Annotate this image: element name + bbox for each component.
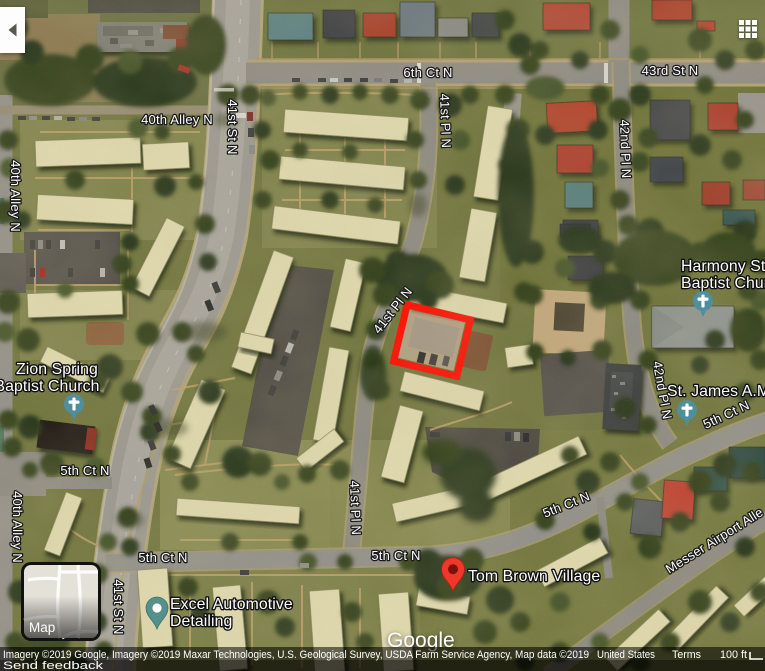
svg-text:Send feedback: Send feedback	[3, 660, 104, 671]
svg-text:Harmony Stre: Harmony Stre	[681, 258, 765, 275]
svg-text:100 ft: 100 ft	[720, 649, 747, 661]
svg-text:Terms: Terms	[672, 649, 701, 661]
svg-text:40th Alley N: 40th Alley N	[141, 112, 213, 127]
svg-text:41st St N: 41st St N	[111, 579, 126, 634]
svg-text:Baptist Churc: Baptist Churc	[681, 275, 765, 292]
svg-text:St. James A.M.: St. James A.M.	[667, 383, 765, 400]
svg-text:Map: Map	[29, 620, 55, 635]
svg-text:42nd Pl N: 42nd Pl N	[617, 119, 634, 178]
svg-text:Detailing: Detailing	[170, 613, 232, 630]
svg-text:5th Ct N: 5th Ct N	[60, 463, 109, 478]
svg-text:Baptist Church: Baptist Church	[0, 378, 100, 395]
svg-text:Tom Brown Village: Tom Brown Village	[468, 568, 600, 585]
svg-text:5th Ct N: 5th Ct N	[138, 550, 187, 565]
svg-text:Zion Spring: Zion Spring	[16, 361, 98, 378]
svg-text:41st Pl N: 41st Pl N	[437, 93, 454, 148]
svg-text:41st St N: 41st St N	[225, 99, 240, 154]
svg-text:United States: United States	[597, 649, 655, 661]
svg-text:41st Pl N: 41st Pl N	[347, 480, 364, 535]
svg-text:6th Ct N: 6th Ct N	[403, 65, 452, 80]
svg-text:Excel Automotive: Excel Automotive	[170, 596, 293, 613]
svg-text:40th Alley N: 40th Alley N	[8, 160, 23, 232]
svg-text:5th Ct N: 5th Ct N	[371, 548, 420, 563]
svg-text:40th Alley N: 40th Alley N	[10, 491, 25, 563]
svg-text:43rd St N: 43rd St N	[642, 63, 699, 78]
